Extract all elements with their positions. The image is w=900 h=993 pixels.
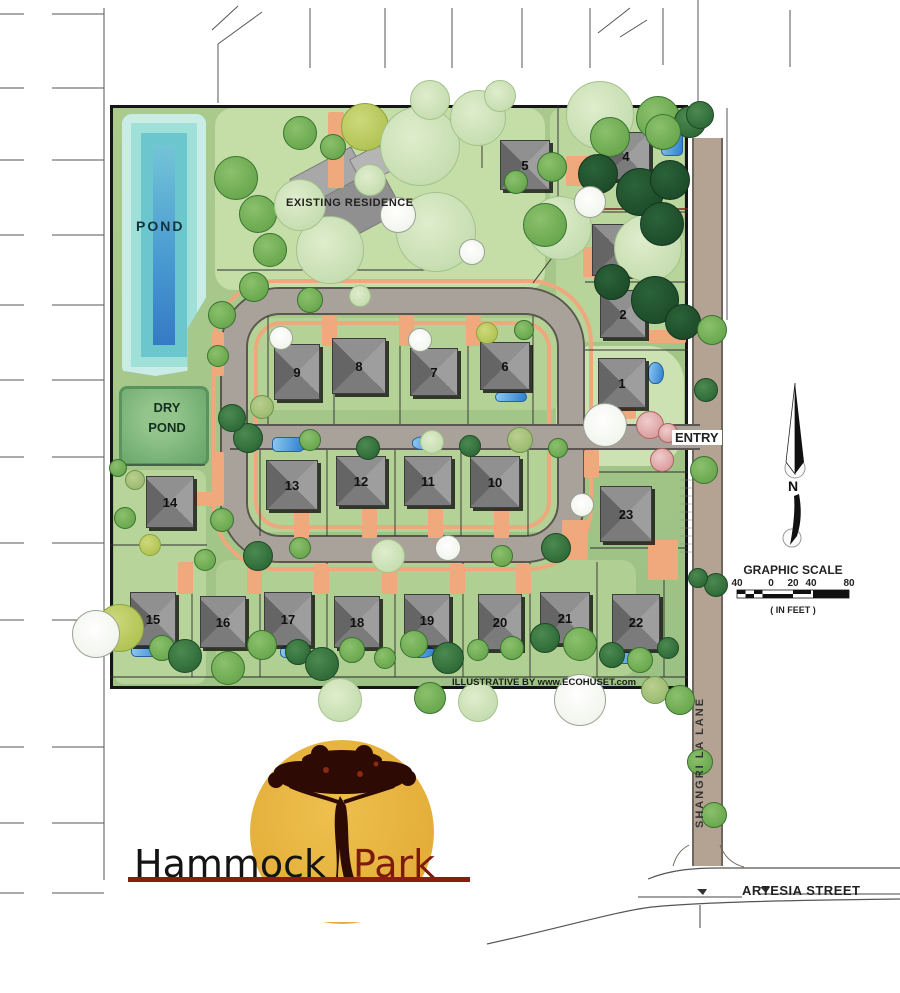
scale-tick: 40 [731,578,742,589]
shangri-la-lane-label: SHANGRI LA LANE [694,668,706,828]
dry-pond-label: DRY POND [134,398,200,438]
scale-bar [737,590,849,598]
in-feet-label: ( IN FEET ) [733,605,853,615]
north-label: N [788,478,798,494]
entry-label: ENTRY [672,430,722,445]
scale-tick: 0 [768,578,774,589]
graphic-scale-title: GRAPHIC SCALE [733,563,853,577]
scale-tick: 40 [805,578,816,589]
scale-tick: 20 [787,578,798,589]
artesia-street-label: ARTESIA STREET [742,883,860,898]
logo-underline [128,877,470,882]
north-arrow [783,383,805,547]
scale-tick: 80 [843,578,854,589]
logo-baseline-mask [238,882,453,922]
pond-label: POND [136,218,184,234]
credit-label: ILLUSTRATIVE BY www.ECOHUSET.com [452,677,636,688]
site-plan-canvas: 1234567891011121314151617181920212223 [0,0,900,993]
existing-residence-label: EXISTING RESIDENCE [286,197,414,209]
